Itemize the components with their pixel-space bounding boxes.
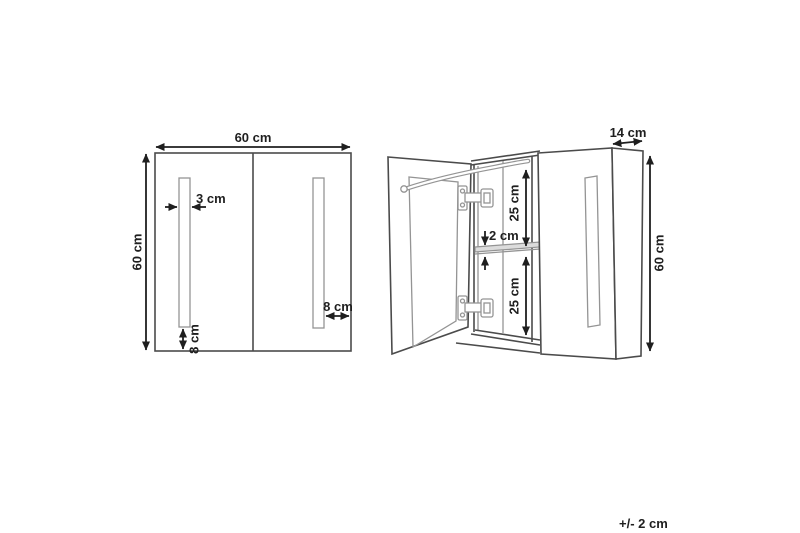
front-view: 60 cm 60 cm 3 cm 8 cm 8 cm: [130, 130, 353, 354]
strip-bottom-offset-dimension: 8 cm: [183, 324, 202, 354]
strip-width-label: 3 cm: [196, 191, 226, 206]
upper-compartment-label: 25 cm: [507, 185, 522, 222]
front-width-label: 60 cm: [235, 130, 272, 145]
tolerance-note: +/- 2 cm: [619, 516, 668, 531]
hinge-bottom: [458, 296, 493, 320]
closed-door-front-face: [538, 148, 616, 359]
cabinet-diagram: 60 cm 60 cm 3 cm 8 cm 8 cm: [0, 0, 800, 533]
side-height-label: 60 cm: [652, 235, 667, 272]
side-view: 25 cm 2 cm 25 cm 14 cm 60 cm: [388, 125, 667, 359]
depth-label: 14 cm: [610, 125, 647, 140]
led-strip-closed-door: [585, 176, 600, 327]
closed-door-side-face: [612, 148, 643, 359]
front-height-label: 60 cm: [130, 234, 145, 271]
carcass-bottom-lower-edge: [456, 343, 540, 353]
led-strip-left: [179, 178, 190, 327]
strip-side-offset-dimension: 8 cm: [323, 299, 353, 316]
carcass-bottom-inner-edge: [475, 330, 540, 340]
carcass-bottom-front-edge: [471, 334, 540, 345]
strip-bottom-offset-label: 8 cm: [187, 324, 202, 354]
dimension-drawing: 60 cm 60 cm 3 cm 8 cm 8 cm: [0, 0, 800, 533]
strip-side-offset-label: 8 cm: [323, 299, 353, 314]
hinge-top: [458, 186, 493, 210]
shelf-thickness-label: 2 cm: [489, 228, 519, 243]
lower-compartment-dimension: 25 cm: [507, 257, 527, 335]
depth-dimension: 14 cm: [610, 125, 647, 144]
side-height-dimension: 60 cm: [650, 156, 667, 351]
cable-connector: [401, 186, 407, 192]
lower-compartment-label: 25 cm: [507, 278, 522, 315]
front-height-dimension: 60 cm: [130, 154, 147, 350]
front-width-dimension: 60 cm: [156, 130, 350, 147]
